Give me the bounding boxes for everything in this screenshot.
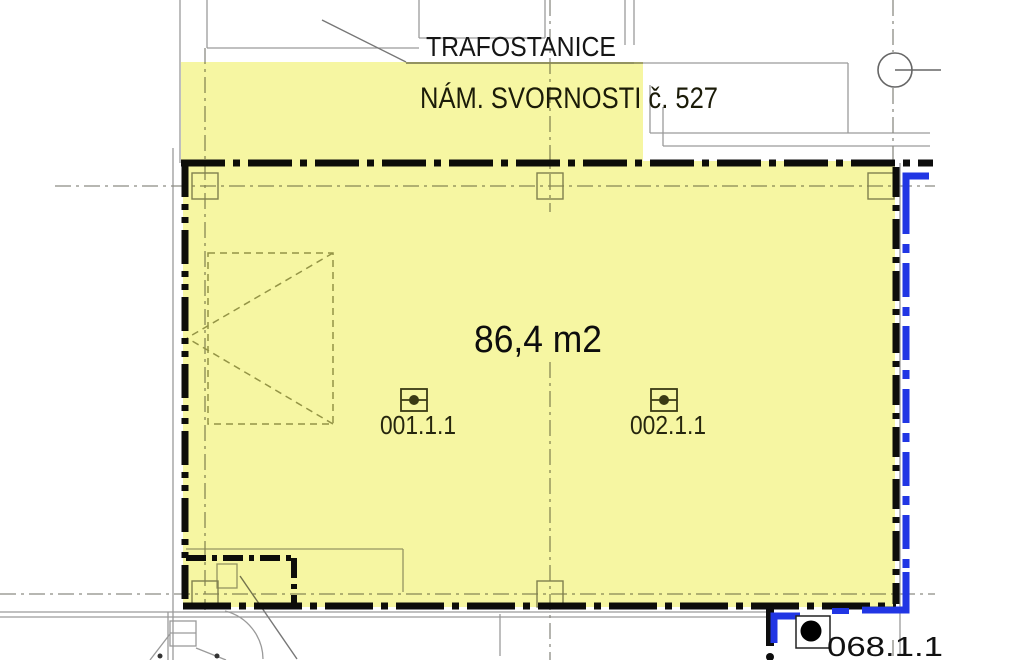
- room-id-label-001: 001.1.1: [380, 410, 456, 440]
- room-id-label-002: 002.1.1: [630, 410, 706, 440]
- stairs-outline: [150, 621, 226, 660]
- room-id-label-068: 068.1.1: [827, 631, 943, 660]
- fixture-marker-icon: [796, 616, 830, 648]
- address-label: NÁM. SVORNOSTI č. 527: [420, 82, 718, 115]
- leader-line: [322, 20, 406, 62]
- axis-bubble-icon: [878, 53, 941, 87]
- building-title-label: TRAFOSTANICE: [426, 31, 616, 62]
- floorplan-canvas: TRAFOSTANICE NÁM. SVORNOSTI č. 527 86,4 …: [0, 0, 1024, 660]
- area-label: 86,4 m2: [474, 319, 602, 361]
- floorplan-page: TRAFOSTANICE NÁM. SVORNOSTI č. 527 86,4 …: [0, 0, 1024, 660]
